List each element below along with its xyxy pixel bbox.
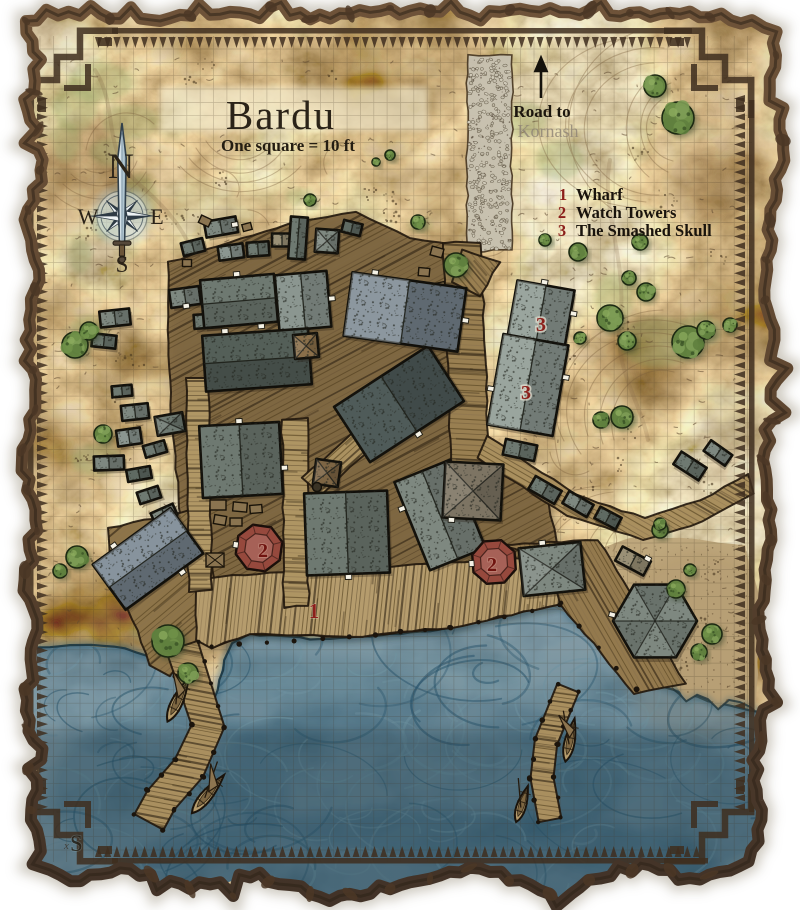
svg-text:2: 2 (258, 540, 268, 562)
svg-text:2: 2 (487, 554, 497, 576)
svg-text:S: S (116, 252, 129, 277)
svg-text:3: 3 (521, 382, 531, 404)
svg-text:Road to: Road to (513, 102, 570, 121)
svg-text:E: E (150, 204, 163, 229)
svg-text:2: 2 (558, 203, 566, 222)
svg-text:Wharf: Wharf (576, 185, 623, 204)
svg-text:1: 1 (559, 185, 567, 204)
svg-text:Kornash: Kornash (518, 121, 579, 141)
svg-text:3: 3 (558, 221, 566, 240)
svg-text:Bardu: Bardu (226, 92, 336, 138)
svg-text:x: x (63, 840, 69, 852)
svg-text:3: 3 (536, 314, 546, 336)
svg-text:One square = 10 ft: One square = 10 ft (221, 136, 355, 155)
svg-text:The Smashed Skull: The Smashed Skull (576, 221, 712, 240)
svg-text:Watch Towers: Watch Towers (576, 203, 677, 222)
svg-text:W: W (78, 204, 99, 229)
svg-text:S: S (70, 831, 83, 856)
svg-text:1: 1 (309, 599, 320, 623)
svg-text:N: N (108, 146, 134, 186)
